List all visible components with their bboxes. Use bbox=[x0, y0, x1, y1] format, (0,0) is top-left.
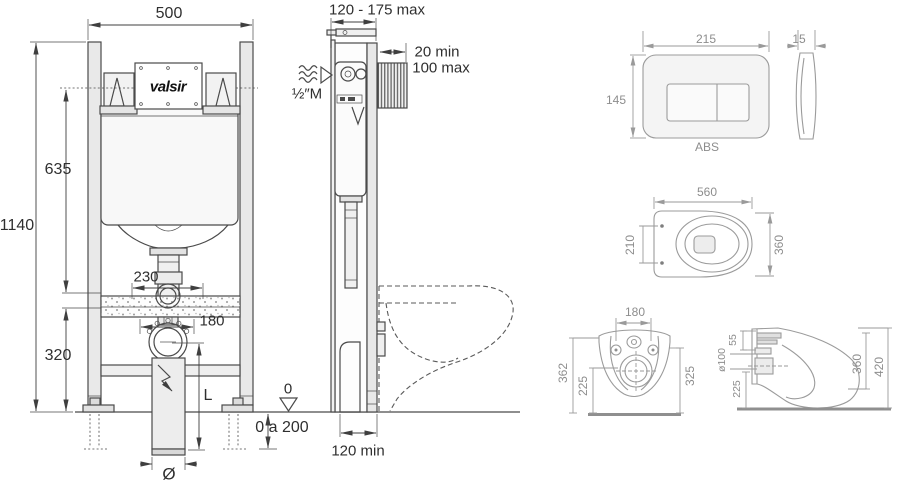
dim-frame-upper-height-label: 635 bbox=[45, 162, 72, 178]
flush-buttons bbox=[667, 84, 749, 121]
fixing-hole bbox=[660, 261, 664, 265]
wc-front-view bbox=[588, 330, 681, 415]
frame-side-view bbox=[299, 29, 513, 412]
dim-floor-offset-label: 0 a 200 bbox=[255, 420, 308, 436]
dim-frame-width-label: 500 bbox=[156, 6, 183, 22]
dim-base-depth-label: 120 min bbox=[331, 444, 384, 459]
brand-logo: valsir bbox=[150, 80, 186, 95]
dim-wc-fixing-spacing-top-label: 210 bbox=[624, 235, 636, 255]
dim-plate-width-label: 215 bbox=[696, 33, 716, 45]
wc-side-view bbox=[737, 328, 891, 409]
bowl-fixing-bracket bbox=[377, 334, 385, 356]
flush-plate-front-view bbox=[643, 55, 769, 138]
corrugated-inlet-hose bbox=[378, 63, 407, 108]
dim-wc-bowl-height-label: 325 bbox=[684, 366, 696, 386]
dim-wc-width-label: 360 bbox=[773, 235, 785, 255]
dim-wc-drain-diameter-label: ø100 bbox=[717, 348, 728, 372]
water-inlet-icon bbox=[299, 66, 332, 83]
bowl-fixing-bracket bbox=[377, 322, 385, 331]
dim-wc-overall-depth-label: 420 bbox=[873, 357, 885, 377]
fixing-hole bbox=[660, 224, 664, 228]
dim-wc-overall-height-label: 362 bbox=[557, 363, 569, 383]
dim-pipe-length-label: L bbox=[204, 388, 213, 404]
dim-wc-inner-depth-label: 360 bbox=[851, 354, 863, 374]
water-inlet-thread-label: ½″M bbox=[292, 87, 322, 102]
flush-plate-side-view bbox=[796, 53, 816, 139]
plate-material-label: ABS bbox=[695, 141, 719, 153]
dim-wc-inlet-offset-label: 55 bbox=[728, 334, 739, 346]
dim-frame-total-height-label: 1140 bbox=[0, 218, 34, 234]
dim-outlet-spacing-label: 180 bbox=[199, 314, 224, 329]
outlet-bend-fitting bbox=[147, 317, 189, 361]
dim-wc-fixing-spacing-front-label: 180 bbox=[625, 306, 645, 318]
dim-wall-clearance-max-label: 100 max bbox=[412, 61, 470, 76]
dim-pipe-diameter-label: Ø bbox=[162, 466, 175, 483]
dim-wc-length-label: 560 bbox=[697, 186, 717, 198]
dim-depth-range-label: 120 - 175 max bbox=[329, 3, 425, 18]
dim-wall-clearance-min-label: 20 min bbox=[414, 45, 459, 60]
dim-plate-thickness-label: 15 bbox=[792, 33, 805, 45]
wc-side-dimensions bbox=[730, 328, 892, 408]
dim-wc-drain-height-side-label: 225 bbox=[732, 380, 743, 398]
dim-plate-height-label: 145 bbox=[606, 94, 626, 106]
datum-triangle-icon bbox=[280, 398, 297, 411]
concealed-cistern bbox=[101, 108, 238, 297]
wc-top-view bbox=[654, 211, 752, 277]
technical-drawing-sheet: 500 1140 635 320 230 180 L 0 0 a 200 Ø 1… bbox=[0, 0, 900, 484]
dim-inlet-spacing-label: 230 bbox=[133, 270, 158, 285]
dim-frame-lower-height-label: 320 bbox=[45, 348, 72, 364]
drain-pipe bbox=[152, 358, 185, 455]
datum-zero-label: 0 bbox=[284, 382, 292, 397]
dim-wc-drain-height-front-label: 225 bbox=[577, 376, 589, 396]
frame-front-view bbox=[75, 42, 520, 455]
wall-board bbox=[367, 43, 377, 412]
wc-bowl-dashed-outline bbox=[379, 286, 513, 411]
